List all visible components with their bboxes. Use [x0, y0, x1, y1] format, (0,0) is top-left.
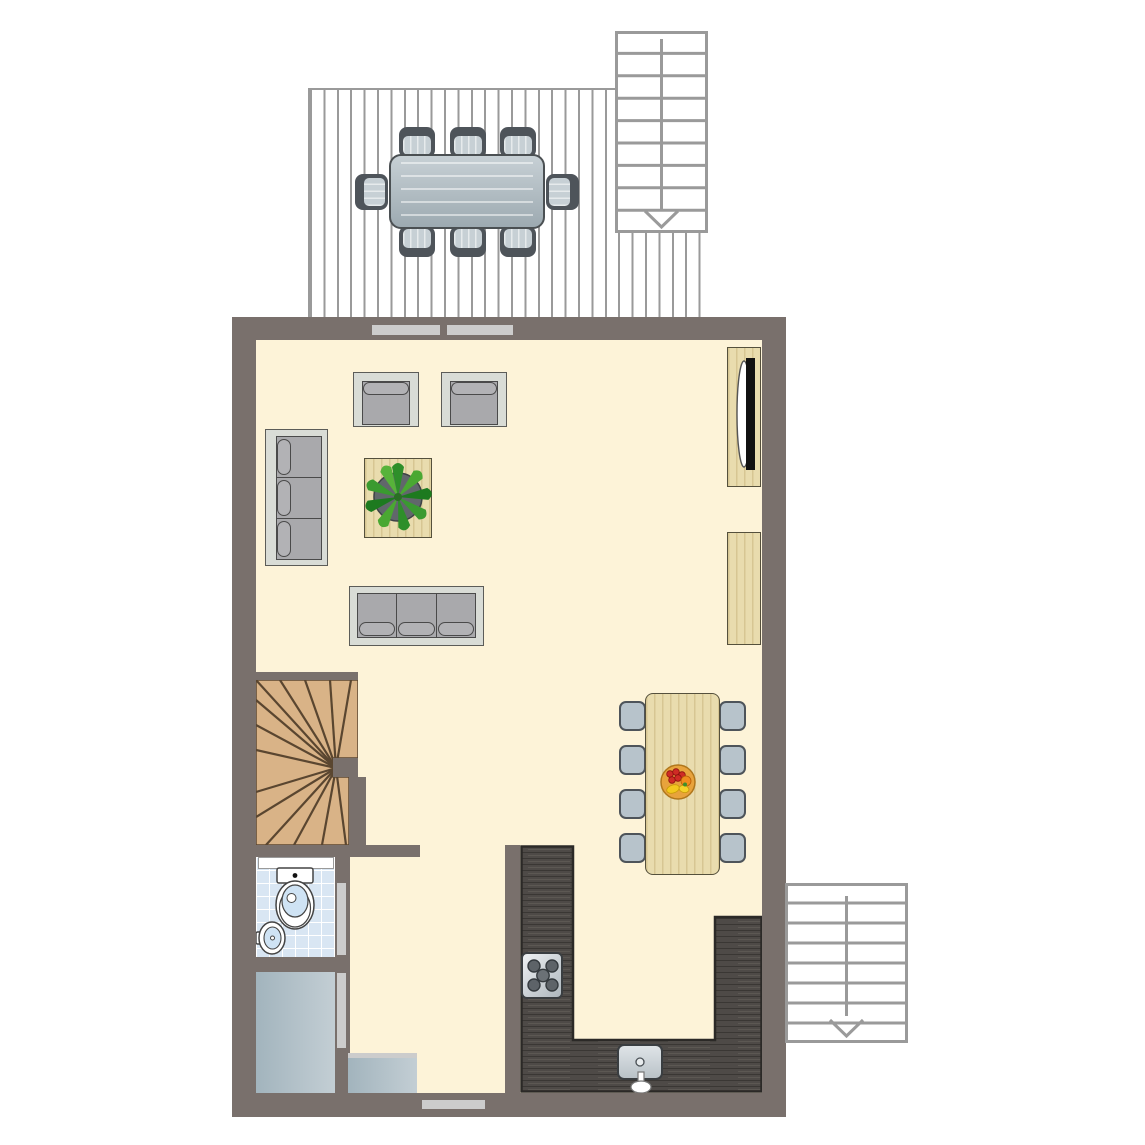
toilet [276, 868, 314, 929]
window-top-left [372, 325, 440, 335]
staircase-bottom-right [785, 883, 908, 1043]
outer-wall-bottom [232, 1093, 786, 1117]
window-top-right [447, 325, 513, 335]
sink-drain [636, 1058, 644, 1066]
dining-chair [619, 745, 646, 775]
staircase-top [615, 31, 708, 233]
deck-chair-seat [454, 136, 482, 155]
storage-bench [348, 1058, 417, 1093]
deck-dining-table [389, 154, 545, 229]
interior-wall-kitchen [505, 845, 520, 1093]
grape [683, 783, 687, 787]
stove-burners [528, 960, 558, 991]
deck-chair-seat [403, 136, 431, 155]
sofa-three-seat-horizontal [349, 586, 484, 646]
stove-cooktop [521, 952, 563, 999]
deck-chair-seat [504, 136, 532, 155]
interior-wall-bathroom-storage [256, 957, 350, 972]
dining-chair [619, 833, 646, 863]
deck-chair-seat [504, 229, 532, 248]
dining-chair [719, 789, 746, 819]
floor-plan-canvas [0, 0, 1145, 1145]
bathroom-door [337, 883, 346, 955]
bathroom-fixtures [256, 857, 335, 957]
deck-chair-seat [364, 178, 385, 206]
deck-chair [500, 226, 536, 257]
potted-plant [362, 461, 434, 533]
dining-chair [719, 745, 746, 775]
tv-screen [746, 358, 755, 470]
deck-chair-seat [549, 178, 570, 206]
fruit-bowl [659, 763, 697, 801]
dining-chair [719, 701, 746, 731]
interior-wall-stair-newel [333, 758, 358, 777]
sofa-three-seat-vertical [265, 429, 328, 566]
deck-chair [546, 174, 579, 210]
armchair [353, 372, 419, 427]
hand-basin [256, 922, 285, 954]
deck-chair-seat [403, 229, 431, 248]
deck-chair [399, 226, 435, 257]
television [727, 347, 761, 487]
storage-door [337, 973, 346, 1048]
window-bottom [422, 1100, 485, 1109]
deck-chair [355, 174, 388, 210]
dining-chair [619, 789, 646, 819]
outer-wall-right [762, 317, 786, 1117]
dining-chair [719, 833, 746, 863]
kitchen-faucet [627, 1070, 655, 1094]
interior-wall-above-stairs [256, 672, 358, 680]
sideboard [727, 532, 761, 645]
dining-chair [619, 701, 646, 731]
outer-wall-left [232, 317, 256, 1117]
deck-chair-seat [454, 229, 482, 248]
armchair [441, 372, 507, 427]
interior-wall-below-stairs [256, 845, 420, 857]
storage-room [256, 972, 335, 1093]
interior-wall-stair-right [349, 777, 366, 845]
deck-chair [450, 226, 486, 257]
